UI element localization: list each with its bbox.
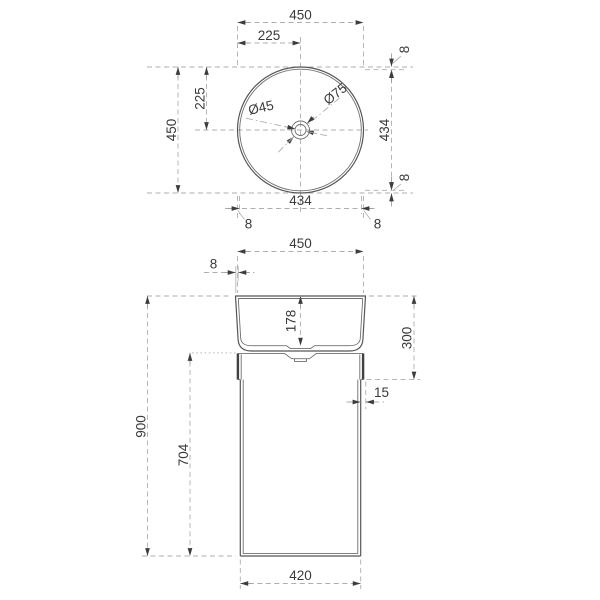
- pedestal-top-section: [238, 353, 363, 379]
- dimension-side-inset: 15: [347, 385, 390, 402]
- dimension-rim-gap-left: 8: [238, 211, 252, 232]
- dimension-rim-gap-right: 8: [364, 211, 381, 232]
- dim-label-left-overall-depth: 450: [164, 119, 179, 142]
- dim-label-rim-gap-top: 8: [397, 46, 412, 54]
- dimension-rim-gap-top: 8: [392, 46, 413, 83]
- top-view-centerlines: [195, 37, 368, 215]
- pedestal-top-edge: [238, 353, 363, 358]
- dim-label-bowl-depth: 178: [284, 310, 299, 333]
- dim-label-rim-gap-left: 8: [245, 217, 253, 232]
- dim-label-left-center-offset-y: 225: [193, 87, 208, 110]
- dim-label-rim-thickness: 8: [210, 257, 218, 272]
- top-view-extension-lines: [147, 26, 413, 221]
- dim-label-top-center-offset-x: 225: [258, 28, 281, 43]
- dim-label-side-inset: 15: [374, 385, 389, 400]
- top-view: 450 225 450 225 434 8: [147, 8, 413, 232]
- dim-label-front-top-width: 450: [289, 236, 312, 251]
- dimension-top-overall-width: 450: [238, 8, 364, 23]
- dim-label-rim-gap-bottom: 8: [397, 174, 412, 182]
- dimension-left-overall-depth: 450: [164, 67, 179, 193]
- dim-label-pedestal-height: 704: [176, 443, 191, 466]
- dimension-pedestal-height: 704: [176, 353, 191, 556]
- dim-label-rim-gap-right: 8: [374, 217, 382, 232]
- dimension-top-center-offset-x: 225: [238, 28, 301, 43]
- dim-label-basin-section-height: 300: [400, 327, 415, 350]
- dimension-left-center-offset-y: 225: [193, 67, 208, 130]
- front-view: 450 8 178 300 15 900: [134, 236, 421, 589]
- dimension-front-top-width: 450: [238, 236, 364, 252]
- dim-label-base-width: 420: [289, 568, 312, 583]
- drain-inner-diameter-label: Ø45: [247, 97, 275, 117]
- dimension-right-inner-depth: 434: [377, 70, 392, 191]
- dim-label-total-height: 900: [134, 415, 149, 438]
- dim-label-bottom-inner-width: 434: [289, 193, 312, 208]
- dimension-total-height: 900: [134, 296, 149, 556]
- drawing-canvas: 450 225 450 225 434 8: [0, 0, 600, 600]
- dim-label-right-inner-depth: 434: [377, 118, 392, 141]
- dim-label-top-overall-width: 450: [289, 8, 312, 23]
- dimension-basin-section-height: 300: [400, 296, 415, 380]
- drawing-page: 450 225 450 225 434 8: [0, 0, 600, 600]
- dimension-rim-thickness: 8: [210, 257, 250, 273]
- pedestal-column: [238, 380, 363, 556]
- annotation-drain-outer-diameter: Ø75: [278, 80, 350, 152]
- drain-outer-diameter-label: Ø75: [321, 80, 350, 108]
- dimension-bottom-inner-width: 434: [225, 193, 376, 209]
- dimension-base-width: 420: [240, 568, 360, 584]
